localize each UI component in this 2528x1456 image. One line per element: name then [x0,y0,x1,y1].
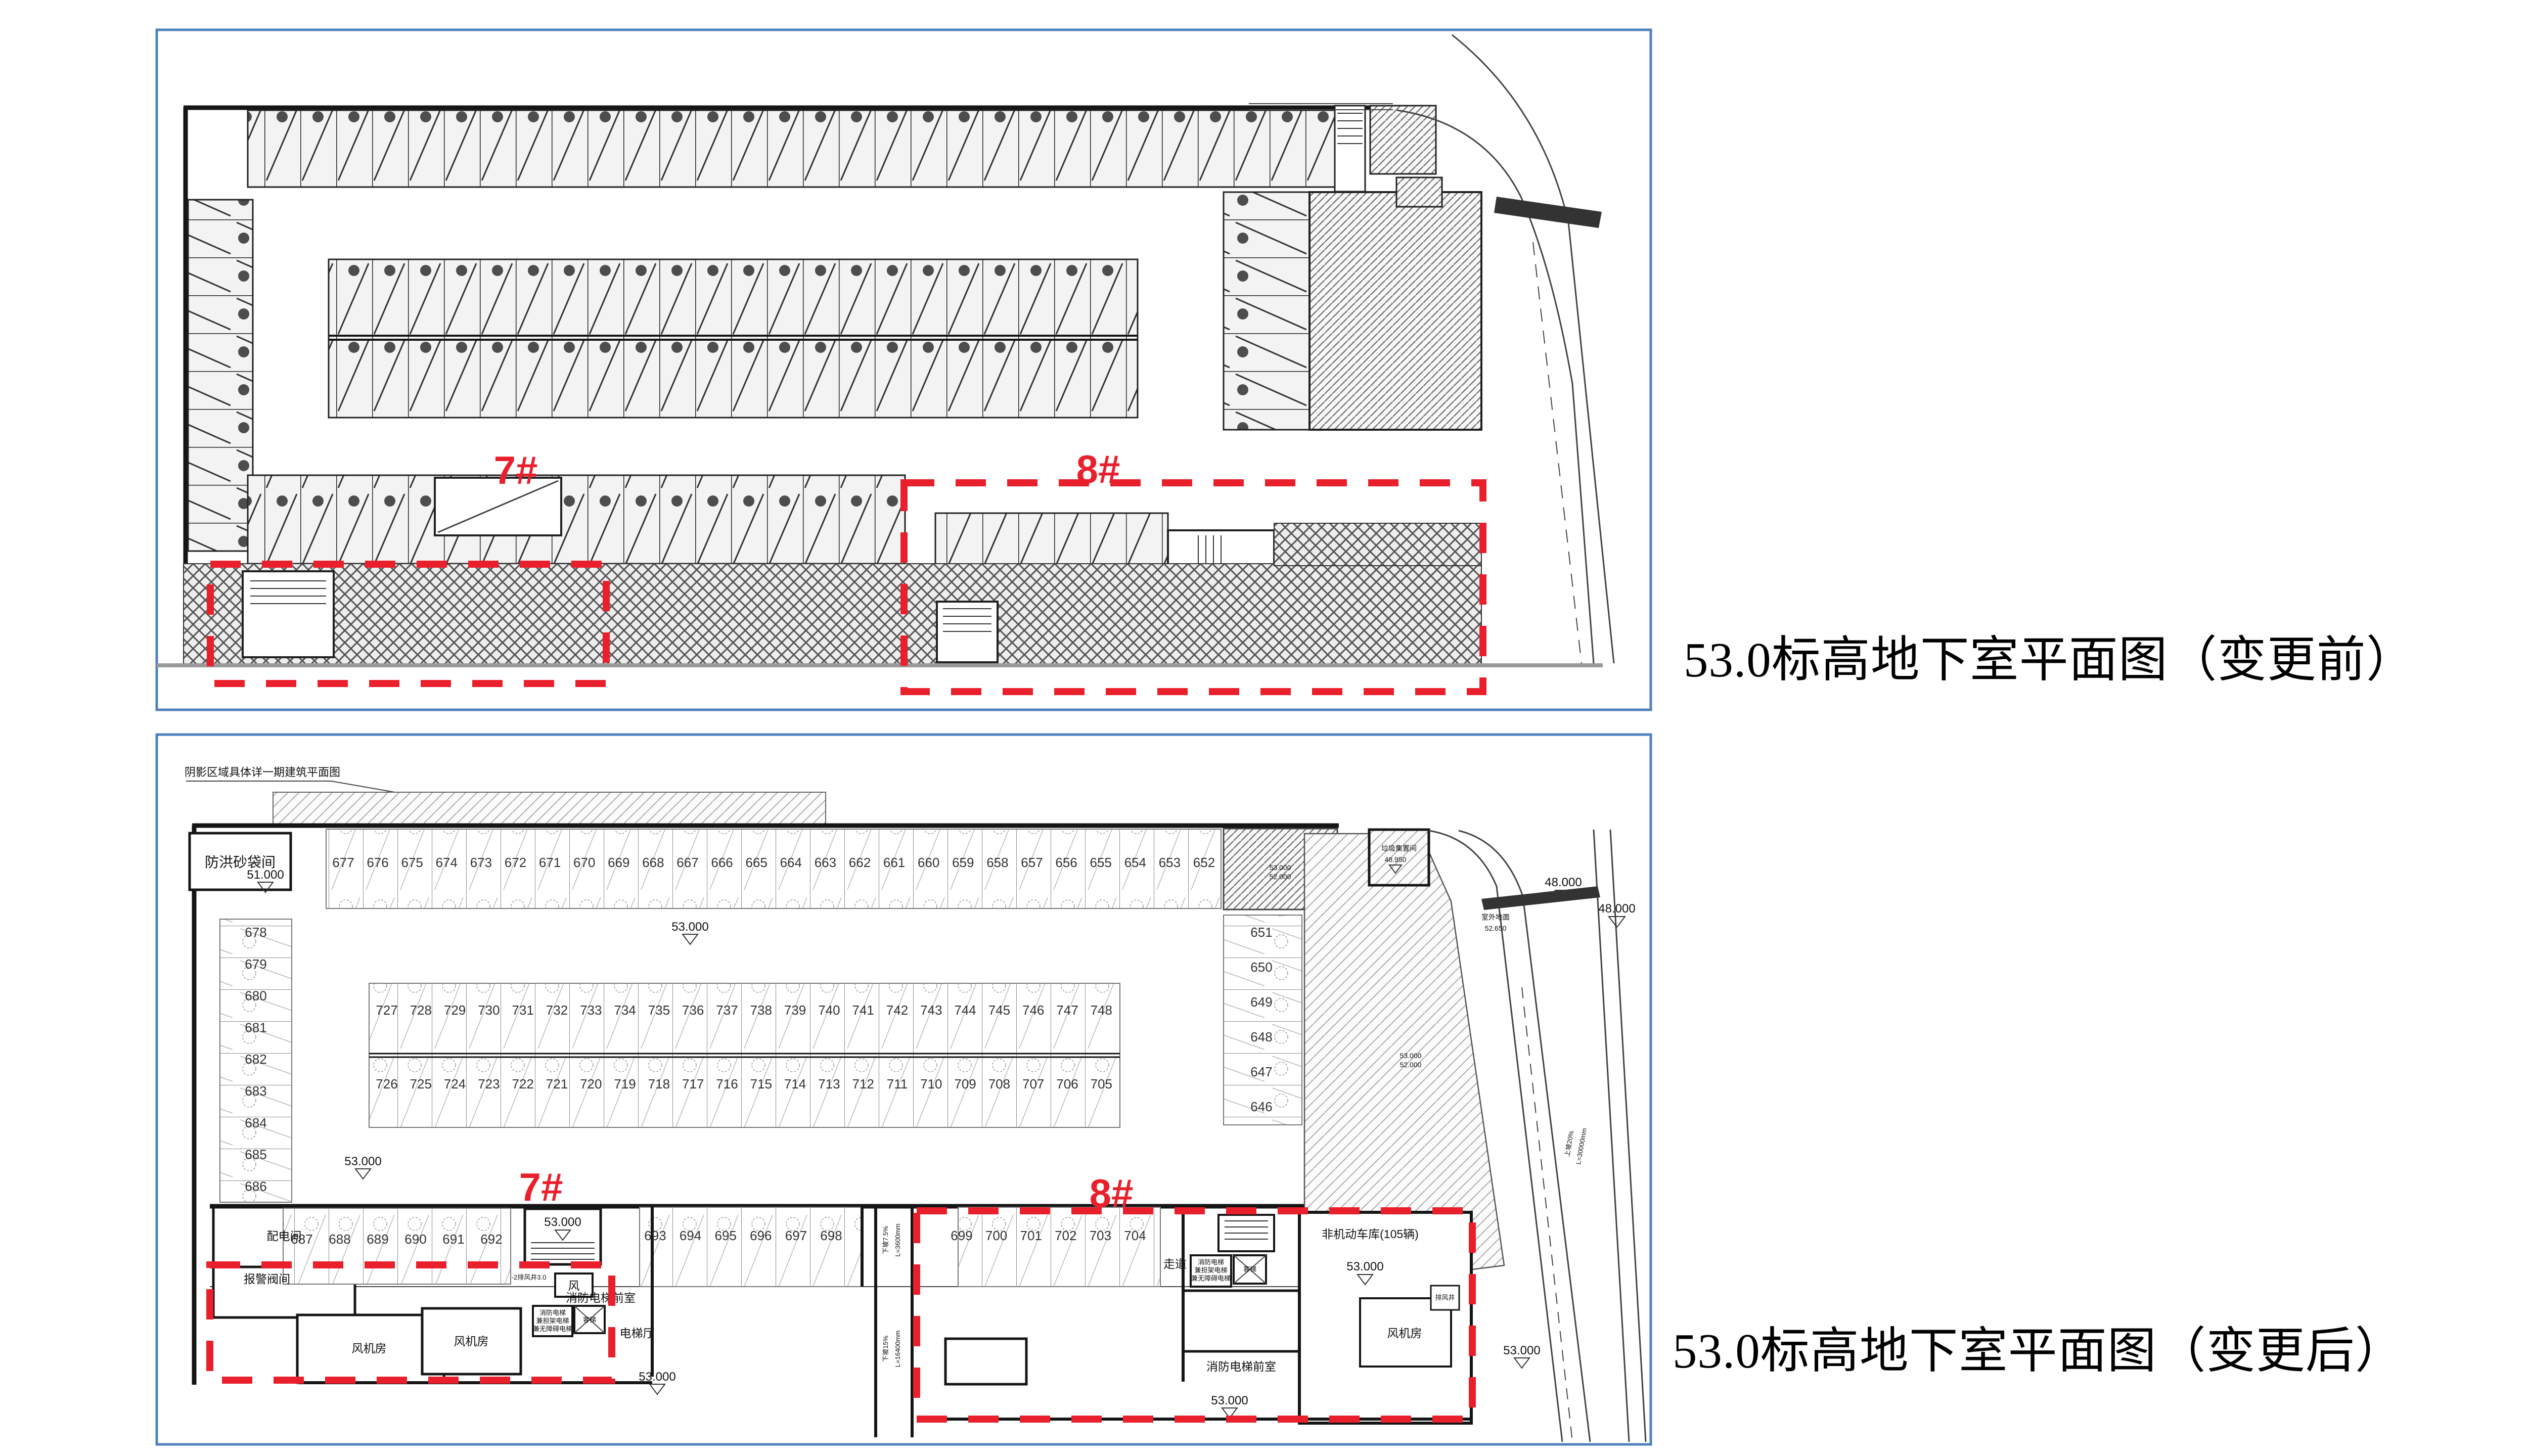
parking-space-number: 722 [512,1076,534,1091]
parking-space-number: 681 [245,1020,266,1035]
parking-space-number: 682 [245,1052,266,1067]
parking-space-number: 664 [780,855,802,870]
parking-space-number: 649 [1250,994,1272,1010]
elevation-48-a: 48.000 [1545,876,1582,889]
parking-space-number: 738 [750,1003,772,1018]
fire-elevator-note-1-l1: 消防电梯 [539,1309,566,1316]
parking-space-number: 652 [1193,855,1215,870]
parking-space-number: 667 [676,855,698,870]
passenger-elevator-2: 客梯 [1243,1265,1256,1273]
parking-space-number: 746 [1022,1003,1044,1018]
parking-space-number: 703 [1090,1228,1111,1243]
parking-space-number: 741 [852,1003,874,1018]
fire-elevator-note-2-l3: 兼无障碍电梯 [1191,1275,1231,1282]
parking-space-number: 655 [1090,855,1112,870]
parking-space-number: 707 [1022,1076,1044,1091]
fire-elevator-note-1-l3: 兼无障碍电梯 [533,1325,572,1333]
parking-space-number: 709 [954,1076,976,1091]
parking-space-number: 718 [648,1076,670,1091]
parking-space-number: 676 [367,855,388,870]
parking-space-number: 653 [1159,855,1181,870]
site-plan-canvas: 7# 8# [0,0,2528,1456]
room-label-power-1: 配电间 [267,1230,302,1243]
parking-space-number: 730 [478,1003,500,1018]
parking-space-number: 698 [820,1228,842,1243]
room-label-fan-2: 风机房 [454,1335,489,1348]
parking-space-number: 669 [608,855,629,870]
parking-space-number: 668 [642,855,664,870]
parking-space-number: 701 [1020,1228,1042,1243]
parking-space-number: 696 [750,1228,772,1243]
area-label-8-before: 8# [1076,447,1120,491]
parking-space-number: 691 [442,1232,464,1247]
area-label-7-after: 7# [519,1165,563,1209]
fire-elevator-note-2-l2: 兼担架电梯 [1194,1266,1227,1274]
parking-space-number: 704 [1124,1228,1146,1243]
parking-space-number: 685 [245,1147,266,1162]
parking-space-number: 660 [918,855,939,870]
parking-space-number: 742 [886,1003,908,1018]
parking-space-number: 744 [954,1003,976,1018]
passenger-elevator-1: 客梯 [583,1316,596,1324]
area-label-7-before: 7# [494,448,538,492]
elevation-53-left: 53.000 [344,1155,381,1168]
elevation-53-hall: 53.000 [639,1370,675,1384]
parking-space-number: 662 [849,855,871,870]
parking-space-number: 735 [648,1003,670,1018]
parking-space-number: 680 [245,988,266,1004]
parking-space-number: 732 [546,1003,568,1018]
left-column-numbers: 678679680681682683684685686 [245,925,266,1194]
svg-text:L=3600mm: L=3600mm [894,1223,901,1256]
parking-space-number: 727 [376,1003,397,1018]
parking-space-number: 725 [410,1076,432,1091]
room-label-elevator-hall: 电梯厅 [620,1327,655,1340]
plan-before-geometry [157,35,1614,667]
svg-text:下坡15%: 下坡15% [882,1336,889,1362]
parking-space-number: 683 [245,1083,266,1099]
parking-space-number: 720 [580,1076,602,1091]
shaded-area-note: 阴影区域具体详一期建筑平面图 [185,766,340,779]
parking-space-number: 728 [410,1003,432,1018]
plan-after: 6776766756746736726716706696686676666656… [185,766,1646,1442]
parking-space-number: 724 [444,1076,466,1091]
elevation-52-blockB: 52.000 [1400,1061,1422,1069]
parking-space-number: 719 [614,1076,636,1091]
parking-space-number: 674 [436,855,458,870]
parking-space-number: 721 [546,1076,568,1091]
parking-space-number: 713 [818,1076,840,1091]
parking-space-number: 658 [986,855,1008,870]
outdoor-ground-label: 室外地面 [1481,913,1510,921]
parking-space-number: 647 [1250,1064,1272,1079]
parking-space-number: 736 [682,1003,704,1018]
room-label-fan-3: 风机房 [1387,1327,1422,1340]
parking-space-number: 717 [682,1076,704,1091]
elevation-53-road: 53.000 [1503,1344,1540,1357]
area-label-8-after: 8# [1090,1171,1134,1215]
elevation-53-stair1: 53.000 [544,1215,581,1229]
parking-space-number: 733 [580,1003,602,1018]
room-label-exhaust-shaft: 排风井 [1435,1294,1455,1301]
room-label-trash: 垃圾集置间 [1381,844,1417,852]
elevation-48-95: 48.950 [1385,855,1407,863]
parking-space-number: 748 [1091,1003,1112,1018]
parking-space-number: 745 [988,1003,1010,1018]
caption-before: 53.0标高地下室平面图（变更前） [1684,619,2416,691]
elevation-52-blockA: 52.000 [1270,873,1291,881]
parking-space-number: 697 [785,1228,807,1243]
elevation-48-b: 48.000 [1598,902,1635,916]
room-label-fire-lobby-1: 消防电梯前室 [566,1291,636,1304]
parking-space-number: 729 [444,1003,466,1018]
parking-space-number: 657 [1021,855,1043,870]
parking-space-number: 706 [1056,1076,1078,1091]
parking-space-number: 675 [401,855,423,870]
parking-space-number: 705 [1091,1076,1112,1091]
parking-space-number: 670 [573,855,595,870]
svg-text:L=16400mm: L=16400mm [894,1331,901,1368]
parking-space-number: 715 [750,1076,772,1091]
parking-space-number: 716 [716,1076,738,1091]
parking-space-number: 648 [1250,1029,1272,1044]
parking-space-number: 661 [883,855,905,870]
fire-elevator-note-1-l2: 兼担架电梯 [536,1317,569,1325]
parking-space-number: 673 [470,855,492,870]
parking-space-number: 679 [245,957,266,972]
parking-space-number: 665 [746,855,768,870]
parking-space-number: 711 [887,1076,908,1091]
parking-space-number: 663 [815,855,836,870]
parking-space-number: 700 [985,1228,1007,1243]
parking-space-number: 723 [478,1076,500,1091]
exhaust-shaft-note: -2排风井3.0 [512,1273,547,1281]
fire-elevator-note-2-l1: 消防电梯 [1198,1258,1224,1266]
parking-space-number: 650 [1250,960,1272,975]
elevation-52-65: 52.650 [1485,924,1507,932]
parking-space-number: 692 [480,1232,502,1247]
parking-space-number: 690 [404,1232,426,1247]
parking-space-number: 689 [367,1232,388,1247]
parking-space-number: 712 [852,1076,874,1091]
room-label-alarm-valve: 报警阀间 [244,1272,290,1286]
room-label-bike-garage: 非机动车库(105辆) [1322,1227,1419,1241]
parking-space-number: 678 [245,925,266,940]
room-label-fire-lobby-2: 消防电梯前室 [1206,1360,1276,1373]
elevation-53-bike: 53.000 [1346,1260,1383,1273]
elevation-53-blockB: 53.000 [1400,1052,1422,1060]
parking-space-number: 743 [920,1003,942,1018]
parking-space-number: 656 [1055,855,1077,870]
parking-space-number: 688 [329,1232,350,1247]
parking-space-number: 672 [505,855,526,870]
parking-space-number: 708 [988,1076,1010,1091]
parking-space-number: 740 [818,1003,840,1018]
parking-space-number: 671 [539,855,561,870]
elevation-53-island: 53.000 [671,920,708,934]
parking-space-number: 694 [680,1228,701,1243]
room-label-fan-1: 风机房 [352,1342,387,1355]
parking-space-number: 654 [1124,855,1146,870]
parking-space-number: 659 [952,855,974,870]
parking-space-number: 710 [920,1076,942,1091]
parking-space-number: 666 [711,855,733,870]
parking-space-number: 734 [614,1003,636,1018]
parking-space-number: 737 [716,1003,738,1018]
parking-space-number: 702 [1055,1228,1076,1243]
parking-space-number: 699 [951,1228,972,1243]
elevation-53-blockA: 53.000 [1270,863,1291,872]
caption-after: 53.0标高地下室平面图（变更后） [1673,1310,2405,1382]
parking-space-number: 747 [1056,1003,1078,1018]
elevation-53-lobby2: 53.000 [1211,1394,1248,1407]
elevation-51: 51.000 [247,868,284,882]
parking-space-number: 714 [784,1076,806,1091]
parking-space-number: 726 [376,1076,397,1091]
parking-space-number: 684 [245,1115,266,1130]
parking-space-number: 646 [1250,1099,1272,1114]
parking-space-number: 651 [1250,925,1272,940]
plan-before: 7# 8# [157,35,1614,692]
svg-text:下坡7.5%: 下坡7.5% [882,1226,889,1254]
parking-space-number: 731 [512,1003,534,1018]
parking-space-number: 693 [644,1228,666,1243]
parking-space-number: 739 [784,1003,806,1018]
corridor-label: 走道 [1163,1257,1187,1270]
parking-space-number: 695 [715,1228,737,1243]
room-label-wind-shaft: 风 [568,1279,580,1292]
parking-space-number: 686 [245,1178,266,1194]
parking-space-number: 677 [332,855,354,870]
